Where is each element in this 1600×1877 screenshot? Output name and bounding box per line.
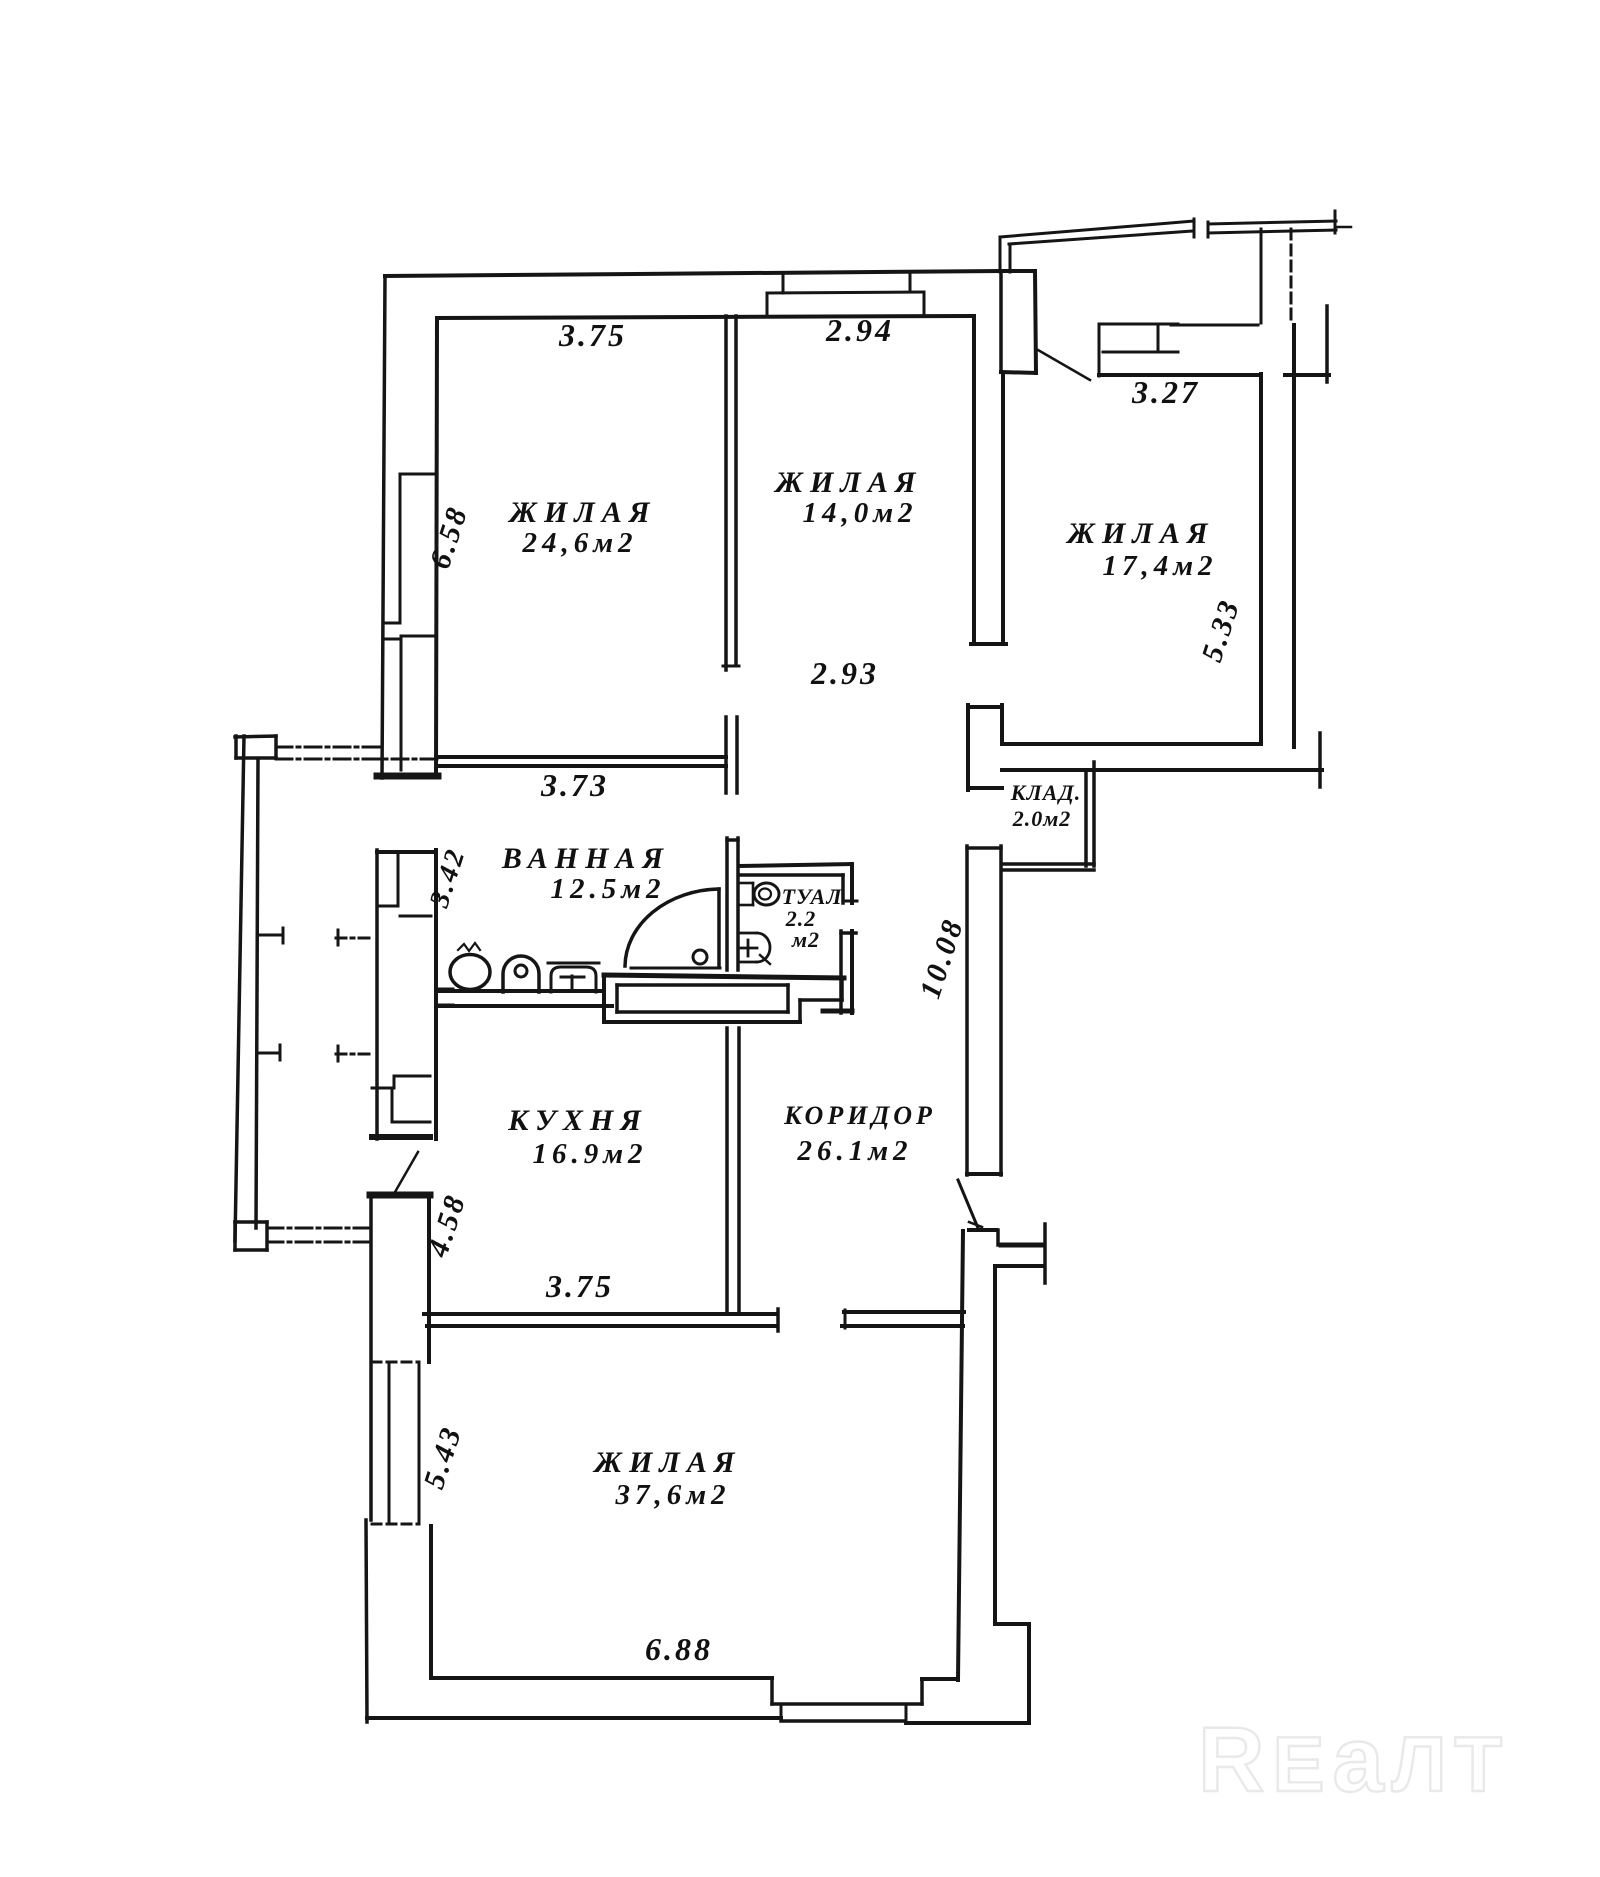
svg-text:12.5м2: 12.5м2 — [550, 873, 665, 905]
svg-text:6.88: 6.88 — [645, 1631, 713, 1667]
svg-text:м2: м2 — [791, 927, 820, 952]
svg-text:2.93: 2.93 — [810, 655, 879, 691]
svg-text:24,6м2: 24,6м2 — [521, 527, 637, 559]
svg-text:16.9м2: 16.9м2 — [532, 1138, 647, 1170]
svg-text:ЖИЛАЯ: ЖИЛАЯ — [1065, 517, 1214, 550]
svg-text:ЖИЛАЯ: ЖИЛАЯ — [773, 466, 922, 499]
svg-text:КОРИДОР: КОРИДОР — [783, 1101, 936, 1130]
svg-text:КЛАД.: КЛАД. — [1010, 780, 1082, 805]
svg-text:КУХНЯ: КУХНЯ — [507, 1104, 648, 1137]
svg-text:37,6м2: 37,6м2 — [614, 1479, 730, 1511]
svg-text:14,0м2: 14,0м2 — [802, 497, 917, 529]
svg-text:REaЛT: REaЛT — [1198, 1709, 1510, 1811]
svg-text:3.27: 3.27 — [1131, 374, 1200, 410]
svg-text:3.75: 3.75 — [558, 317, 627, 353]
svg-text:2.94: 2.94 — [825, 312, 894, 348]
svg-text:ВАННАЯ: ВАННАЯ — [501, 842, 670, 875]
svg-text:3.73: 3.73 — [540, 767, 609, 803]
svg-text:26.1м2: 26.1м2 — [796, 1135, 912, 1167]
svg-text:ЖИЛАЯ: ЖИЛАЯ — [507, 496, 656, 529]
svg-text:ЖИЛАЯ: ЖИЛАЯ — [592, 1446, 741, 1479]
svg-text:17,4м2: 17,4м2 — [1102, 550, 1217, 582]
svg-text:2.0м2: 2.0м2 — [1012, 806, 1072, 831]
svg-text:3.75: 3.75 — [545, 1268, 614, 1304]
